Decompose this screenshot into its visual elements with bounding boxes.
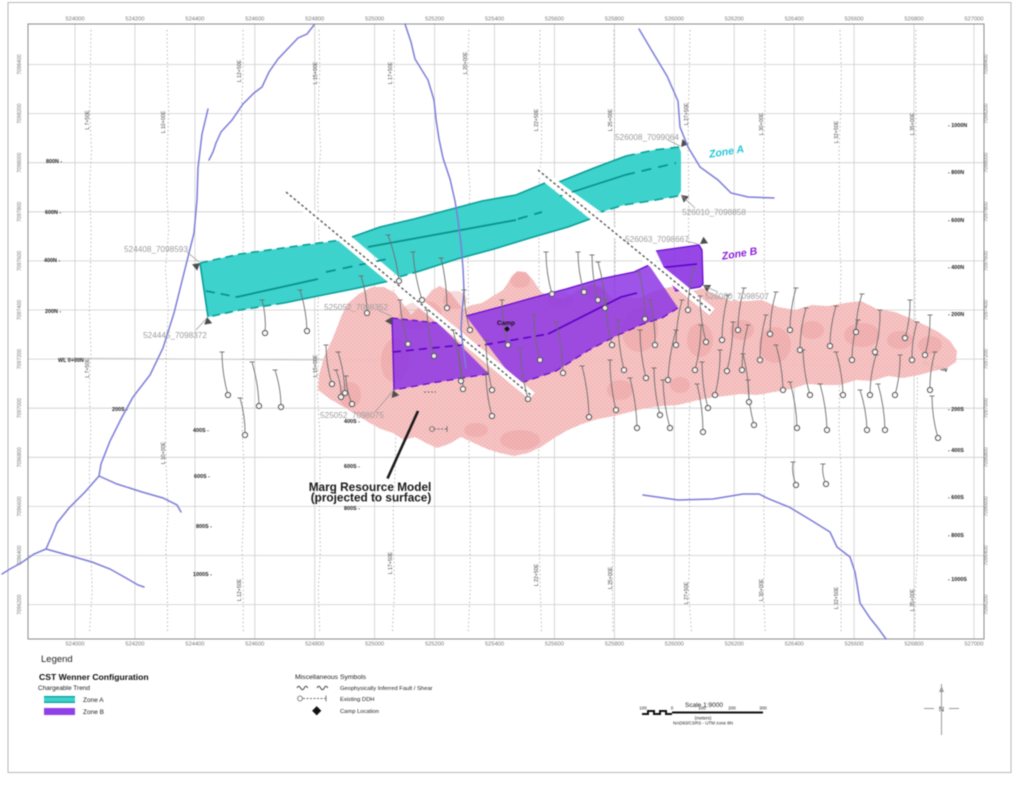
- svg-text:- 200S: - 200S: [948, 407, 964, 413]
- svg-text:CST Wenner Configuration: CST Wenner Configuration: [39, 672, 149, 682]
- svg-text:Existing DDH: Existing DDH: [340, 697, 374, 703]
- svg-text:524600: 524600: [245, 642, 264, 648]
- svg-text:525000: 525000: [365, 642, 384, 648]
- svg-text:526400: 526400: [785, 17, 804, 23]
- svg-text:524600: 524600: [245, 17, 264, 23]
- svg-text:600N -: 600N -: [45, 210, 61, 216]
- svg-text:7098200: 7098200: [984, 103, 990, 123]
- svg-text:100: 100: [698, 706, 706, 711]
- svg-text:1000S -: 1000S -: [193, 572, 212, 578]
- svg-text:7096400: 7096400: [984, 545, 990, 565]
- svg-text:526200: 526200: [725, 642, 744, 648]
- svg-text:600S -: 600S -: [344, 464, 360, 470]
- svg-text:526400: 526400: [785, 642, 804, 648]
- svg-text:524400: 524400: [185, 642, 204, 648]
- svg-text:524200: 524200: [125, 642, 144, 648]
- svg-text:526000: 526000: [665, 642, 684, 648]
- svg-text:7097200: 7097200: [17, 349, 23, 369]
- svg-text:300: 300: [759, 706, 767, 711]
- svg-text:7097000: 7097000: [984, 398, 990, 418]
- svg-text:L 25+00E: L 25+00E: [608, 108, 614, 131]
- svg-text:L 35+00E: L 35+00E: [910, 588, 916, 611]
- svg-text:L 17+50E: L 17+50E: [388, 551, 394, 574]
- svg-text:7097600: 7097600: [17, 251, 23, 271]
- svg-text:524445_7098372: 524445_7098372: [143, 331, 207, 340]
- svg-text:- 400N: - 400N: [948, 265, 964, 271]
- svg-text:L 30+00E: L 30+00E: [759, 112, 765, 135]
- svg-text:200: 200: [728, 706, 736, 711]
- svg-text:524800: 524800: [305, 17, 324, 23]
- svg-text:400S -: 400S -: [193, 428, 209, 434]
- svg-text:525000: 525000: [365, 17, 384, 23]
- svg-text:- 400S: - 400S: [948, 448, 964, 454]
- svg-text:400N -: 400N -: [44, 258, 60, 264]
- svg-text:L 32+50E: L 32+50E: [834, 120, 840, 143]
- svg-text:L 22+50E: L 22+50E: [534, 108, 540, 131]
- svg-text:800S -: 800S -: [196, 524, 212, 530]
- svg-text:524000: 524000: [66, 642, 85, 648]
- svg-text:7097600: 7097600: [984, 251, 990, 271]
- svg-text:525800: 525800: [605, 17, 624, 23]
- svg-text:7096800: 7096800: [17, 447, 23, 467]
- svg-text:Miscellaneous Symbols: Miscellaneous Symbols: [295, 674, 367, 681]
- svg-text:NAD83/CSRS - UTM zone 8N: NAD83/CSRS - UTM zone 8N: [673, 721, 733, 726]
- svg-text:524200: 524200: [125, 17, 144, 23]
- svg-text:525200: 525200: [425, 17, 444, 23]
- svg-text:525200: 525200: [425, 642, 444, 648]
- svg-text:7097200: 7097200: [984, 349, 990, 369]
- svg-text:- 200N: - 200N: [948, 312, 964, 318]
- svg-text:800S -: 800S -: [344, 506, 360, 512]
- svg-text:524800: 524800: [305, 642, 324, 648]
- svg-text:L 17+50E: L 17+50E: [388, 61, 394, 84]
- svg-text:L 10+00E: L 10+00E: [161, 441, 167, 464]
- svg-text:7097800: 7097800: [984, 202, 990, 222]
- svg-text:Chargeable Trend: Chargeable Trend: [38, 685, 90, 692]
- svg-text:7098400: 7098400: [17, 54, 23, 74]
- svg-text:525400: 525400: [485, 17, 504, 23]
- svg-text:- 800N: - 800N: [948, 170, 964, 176]
- svg-text:524408_7098593: 524408_7098593: [124, 245, 188, 254]
- svg-text:- 800S: - 800S: [948, 533, 964, 539]
- svg-text:525052_7098075: 525052_7098075: [320, 411, 384, 420]
- svg-text:WL 0+00N: WL 0+00N: [58, 358, 84, 364]
- svg-text:7096800: 7096800: [984, 447, 990, 467]
- svg-text:Zone A: Zone A: [83, 697, 104, 704]
- svg-text:7098000: 7098000: [17, 152, 23, 172]
- svg-text:525600: 525600: [545, 17, 564, 23]
- svg-text:Camp Location: Camp Location: [340, 709, 379, 715]
- svg-text:- 600N: - 600N: [948, 218, 964, 224]
- svg-text:7096200: 7096200: [984, 594, 990, 614]
- svg-text:L 20+00E: L 20+00E: [463, 51, 469, 74]
- svg-text:N: N: [939, 705, 944, 714]
- svg-text:7097000: 7097000: [17, 398, 23, 418]
- svg-text:526000: 526000: [665, 17, 684, 23]
- svg-text:7096600: 7096600: [17, 496, 23, 516]
- svg-text:- 1000N: - 1000N: [948, 123, 967, 129]
- svg-text:7097800: 7097800: [17, 202, 23, 222]
- svg-text:Zone B: Zone B: [83, 709, 104, 716]
- svg-text:L 30+00E: L 30+00E: [759, 578, 765, 601]
- svg-text:100: 100: [639, 706, 647, 711]
- svg-text:526600: 526600: [845, 642, 864, 648]
- svg-text:Camp: Camp: [497, 320, 515, 327]
- svg-text:526200: 526200: [725, 17, 744, 23]
- svg-text:Legend: Legend: [41, 654, 73, 665]
- svg-text:L 35+00E: L 35+00E: [910, 112, 916, 135]
- svg-text:526063_7098667: 526063_7098667: [625, 235, 689, 244]
- svg-text:526600: 526600: [845, 17, 864, 23]
- svg-text:526800: 526800: [905, 17, 924, 23]
- svg-text:L 10+00E: L 10+00E: [161, 110, 167, 133]
- svg-text:L 7+50E: L 7+50E: [85, 358, 91, 378]
- svg-text:Geophysically Inferred Fault /: Geophysically Inferred Fault / Shear: [340, 686, 433, 692]
- svg-text:7098400: 7098400: [984, 54, 990, 74]
- svg-text:7097400: 7097400: [984, 300, 990, 320]
- svg-text:800N -: 800N -: [46, 159, 62, 165]
- svg-text:L 32+50E: L 32+50E: [834, 586, 840, 609]
- svg-text:525800: 525800: [605, 642, 624, 648]
- svg-text:524000: 524000: [66, 17, 85, 23]
- svg-text:L 12+50E: L 12+50E: [237, 59, 243, 82]
- svg-text:200N -: 200N -: [45, 309, 61, 315]
- svg-text:7096600: 7096600: [984, 496, 990, 516]
- svg-text:527000: 527000: [965, 17, 984, 23]
- svg-text:526800: 526800: [905, 642, 924, 648]
- svg-text:7098200: 7098200: [17, 103, 23, 123]
- svg-text:L 27+50E: L 27+50E: [684, 102, 690, 125]
- svg-text:7096200: 7096200: [17, 594, 23, 614]
- svg-text:527000: 527000: [965, 642, 984, 648]
- svg-text:7097400: 7097400: [17, 300, 23, 320]
- svg-text:L 15+00E: L 15+00E: [313, 61, 319, 84]
- svg-text:- 1000S: - 1000S: [948, 577, 967, 583]
- svg-text:525600: 525600: [545, 642, 564, 648]
- svg-text:L 15+00E: L 15+00E: [313, 354, 319, 377]
- svg-text:525400: 525400: [485, 642, 504, 648]
- svg-text:L 7+50E: L 7+50E: [85, 110, 91, 130]
- svg-text:7098000: 7098000: [984, 152, 990, 172]
- svg-text:526010_7098858: 526010_7098858: [682, 208, 746, 217]
- svg-text:L 25+00E: L 25+00E: [608, 566, 614, 589]
- svg-text:526080_7098507: 526080_7098507: [705, 292, 769, 301]
- svg-text:- 600S: - 600S: [948, 495, 964, 501]
- svg-text:L 12+50E: L 12+50E: [237, 578, 243, 601]
- svg-text:(projected to surface): (projected to surface): [311, 491, 432, 505]
- svg-text:600S -: 600S -: [194, 474, 210, 480]
- svg-text:524400: 524400: [185, 17, 204, 23]
- svg-text:L 22+50E: L 22+50E: [534, 563, 540, 586]
- svg-text:L 27+50E: L 27+50E: [684, 581, 690, 604]
